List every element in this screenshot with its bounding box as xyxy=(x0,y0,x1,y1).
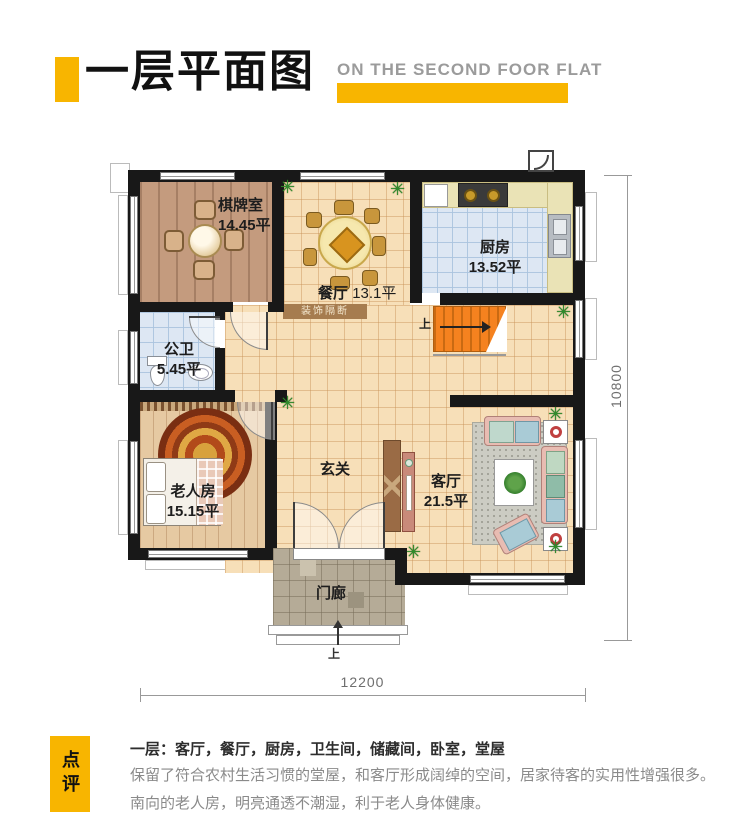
window-icon xyxy=(575,440,583,528)
room-label-bathroom: 公卫 5.45平 xyxy=(148,340,210,381)
window-icon xyxy=(575,300,583,358)
window-icon xyxy=(130,441,138,534)
flue-icon xyxy=(528,150,554,172)
window-sill xyxy=(118,330,128,385)
room-label-chess: 棋牌室 14.45平 xyxy=(218,196,271,237)
window-sill xyxy=(118,440,128,535)
window-sill xyxy=(585,192,597,262)
window-sill xyxy=(585,438,597,530)
room-label-kitchen: 厨房 13.52平 xyxy=(455,238,535,279)
wall xyxy=(128,390,235,402)
stairs-arrow-head xyxy=(482,321,491,333)
room-name: 玄关 xyxy=(320,461,350,478)
partition-banner: 装饰隔断 xyxy=(283,304,367,319)
plant-icon: ✳ xyxy=(556,303,571,321)
fridge-icon xyxy=(424,184,448,207)
console-runner xyxy=(406,475,412,511)
dimension-line-bottom xyxy=(140,695,585,696)
chair-icon xyxy=(372,236,386,256)
plant-icon: ✳ xyxy=(406,543,421,561)
table-plant-icon xyxy=(504,472,526,494)
plant-icon: ✳ xyxy=(280,178,295,196)
door-leaf xyxy=(293,502,295,548)
room-name: 厨房 xyxy=(455,238,535,258)
dimension-tick xyxy=(604,175,632,176)
chair-icon xyxy=(334,200,354,215)
room-label-dining: 餐厅 13.1平 xyxy=(318,284,396,304)
console-table-icon xyxy=(402,452,415,532)
burner-icon xyxy=(464,189,477,202)
stairs-direction-arrow xyxy=(440,326,482,328)
page: 一层平面图 ON THE SECOND FOOR FLAT xyxy=(0,0,750,815)
plant-icon: ✳ xyxy=(548,405,563,423)
room-name: 棋牌室 xyxy=(218,196,271,216)
window-icon xyxy=(160,172,235,180)
sink-basin xyxy=(553,239,567,255)
lamp-icon xyxy=(550,426,562,438)
entrance-up-label: 上 xyxy=(328,645,340,662)
chair-icon xyxy=(194,200,216,220)
room-area: 13.1平 xyxy=(352,285,396,302)
window-sill xyxy=(110,163,130,193)
door-leaf xyxy=(271,402,273,440)
review-summary: 一层：客厅，餐厅，厨房，卫生间，储藏间，卧室，堂屋 xyxy=(130,738,730,759)
cushion xyxy=(515,421,539,443)
dimension-bottom-value: 12200 xyxy=(140,674,585,690)
table-center-decor xyxy=(329,227,366,264)
wall xyxy=(128,302,233,312)
vase-icon xyxy=(405,459,413,467)
entrance-arrow-head xyxy=(333,620,343,628)
floor-plan: 上 装饰隔断 xyxy=(0,0,750,815)
window-sill xyxy=(585,298,597,360)
plant-icon: ✳ xyxy=(548,538,563,556)
dining-table-icon xyxy=(318,216,372,270)
room-area: 15.15平 xyxy=(155,502,231,522)
round-table-icon xyxy=(188,224,222,258)
dimension-line-right xyxy=(627,175,628,640)
cushion xyxy=(546,451,565,474)
dimension-tick xyxy=(140,688,141,702)
chair-icon xyxy=(364,208,380,224)
window-sill xyxy=(468,585,568,595)
window-sill xyxy=(118,195,128,295)
window-icon xyxy=(300,172,385,180)
plant-icon: ✳ xyxy=(280,394,295,412)
sink-basin xyxy=(553,219,567,235)
entrance-threshold xyxy=(293,548,385,560)
room-name: 老人房 xyxy=(155,482,231,502)
dimension-tick xyxy=(585,688,586,702)
sofa-three-seat-icon xyxy=(541,446,568,524)
review-paragraph: 保留了符合农村生活习惯的堂屋，和客厅形成阔绰的空间，居家待客的实用性增强很多。南… xyxy=(130,762,724,815)
room-name: 公卫 xyxy=(148,340,210,360)
wall xyxy=(410,170,422,303)
dimension-right-value: 10800 xyxy=(608,356,624,416)
dimension-tick xyxy=(604,640,632,641)
porch-tile-accent xyxy=(348,592,364,608)
cushion xyxy=(489,421,514,443)
porch-tile-accent xyxy=(300,560,316,576)
stairs-handrail xyxy=(433,354,506,356)
cushion xyxy=(546,475,565,498)
wall xyxy=(268,302,284,312)
door-leaf xyxy=(266,312,268,350)
door-leaf xyxy=(189,316,220,318)
cushion xyxy=(546,499,565,522)
cabinet-icon xyxy=(383,440,401,532)
burner-icon xyxy=(487,189,500,202)
window-icon xyxy=(130,331,138,384)
room-area: 14.45平 xyxy=(218,216,271,236)
review-badge: 点评 xyxy=(50,736,90,812)
chair-icon xyxy=(303,248,317,266)
room-label-porch: 门廊 xyxy=(316,584,346,604)
window-icon xyxy=(148,550,248,558)
coffee-table-icon xyxy=(494,459,534,506)
window-icon xyxy=(470,575,565,583)
sink-icon xyxy=(548,214,571,258)
room-area: 5.45平 xyxy=(148,360,210,380)
door-leaf xyxy=(383,502,385,548)
window-icon xyxy=(575,206,583,261)
room-name: 客厅 xyxy=(415,472,477,492)
wall xyxy=(215,348,225,395)
sofa-two-seat-icon xyxy=(484,416,541,446)
room-label-elder: 老人房 15.15平 xyxy=(155,482,231,523)
room-area: 13.52平 xyxy=(455,258,535,278)
room-name: 门廊 xyxy=(316,585,346,602)
entrance-arrow-line xyxy=(337,627,339,645)
plant-icon: ✳ xyxy=(390,180,405,198)
room-label-living: 客厅 21.5平 xyxy=(415,472,477,513)
room-area: 21.5平 xyxy=(415,492,477,512)
chair-icon xyxy=(306,212,322,228)
flue-curve xyxy=(534,155,549,170)
stove-icon xyxy=(458,183,508,207)
chair-icon xyxy=(164,230,184,252)
stairs-up-label: 上 xyxy=(419,315,431,332)
window-icon xyxy=(130,196,138,294)
room-label-foyer: 玄关 xyxy=(320,460,350,480)
room-name: 餐厅 xyxy=(318,285,348,302)
chair-icon xyxy=(193,260,215,280)
